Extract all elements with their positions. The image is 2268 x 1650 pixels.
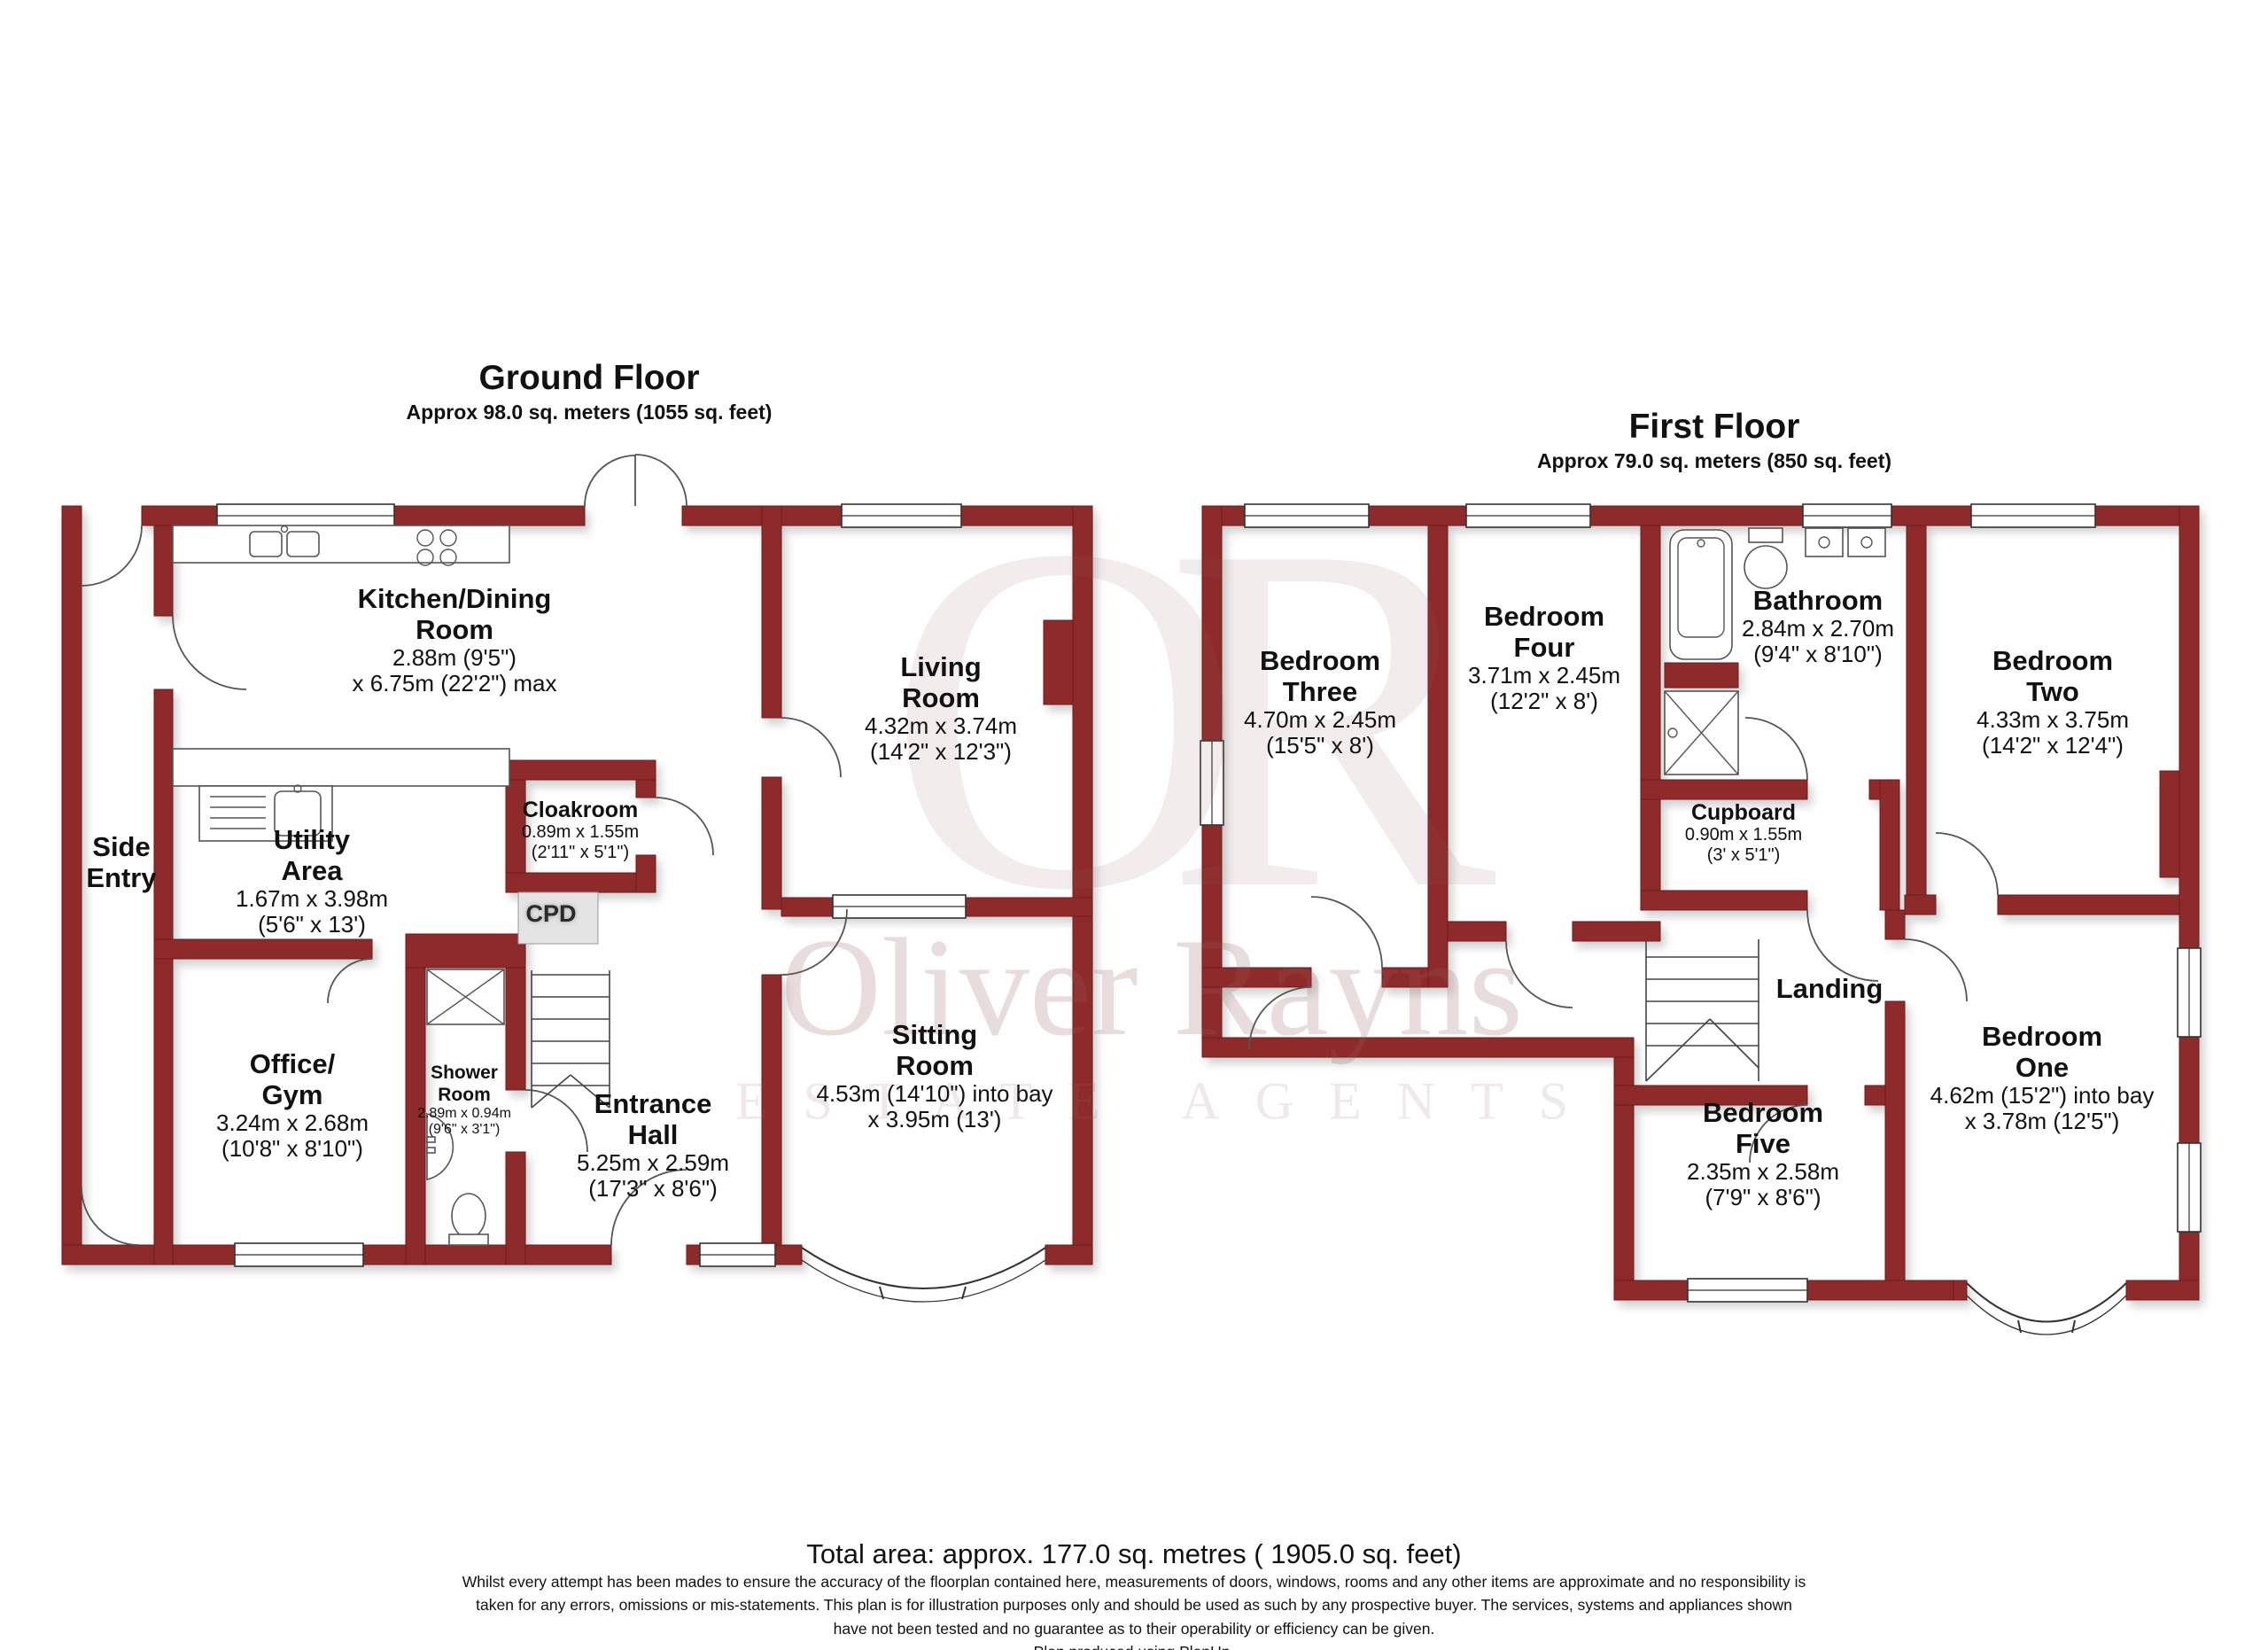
room-dims: 2.35m x 2.58m <box>1687 1159 1839 1185</box>
room-name: Bedroom <box>1244 645 1396 676</box>
room-name: Entry <box>86 862 156 893</box>
room-dims: x 6.75m (22'2") max <box>353 671 557 697</box>
room-label-entrance-hall: Entrance Hall 5.25m x 2.59m (17'3" x 8'6… <box>577 1088 729 1202</box>
room-label-living: Living Room 4.32m x 3.74m (14'2" x 12'3"… <box>865 651 1017 766</box>
room-name: Five <box>1687 1128 1839 1159</box>
room-dims: (14'2" x 12'4") <box>1977 733 2129 759</box>
room-name: One <box>1930 1052 2155 1083</box>
room-dims: (7'9" x 8'6") <box>1687 1185 1839 1210</box>
first-floor-title: First Floor <box>1629 408 1800 447</box>
disclaimer-line: have not been tested and no guarantee as… <box>462 1617 1806 1640</box>
room-name: Cupboard <box>1685 800 1802 825</box>
disclaimer-line: taken for any errors, omissions or mis-s… <box>462 1593 1806 1616</box>
room-name: Side <box>86 831 156 862</box>
room-label-side-entry: Side Entry <box>86 831 156 893</box>
disclaimer-line: Whilst every attempt has been mades to e… <box>462 1570 1806 1593</box>
first-floor-subtitle: Approx 79.0 sq. meters (850 sq. feet) <box>1537 449 1891 473</box>
room-name: Bedroom <box>1468 601 1620 632</box>
room-name: Kitchen/Dining <box>353 583 557 614</box>
room-label-bedroom-one: Bedroom One 4.62m (15'2") into bay x 3.7… <box>1930 1021 2155 1135</box>
room-dims: 4.32m x 3.74m <box>865 713 1017 739</box>
room-name: Bathroom <box>1742 585 1894 616</box>
room-label-bedroom-four: Bedroom Four 3.71m x 2.45m (12'2" x 8') <box>1468 601 1620 715</box>
room-label-shower-room: Shower Room 2.89m x 0.94m (9'6" x 3'1") <box>417 1062 511 1139</box>
room-dims: (9'4" x 8'10") <box>1742 642 1894 667</box>
room-dims: (5'6" x 13') <box>236 912 388 938</box>
room-label-sitting: Sitting Room 4.53m (14'10") into bay x 3… <box>816 1019 1052 1133</box>
room-dims: 3.24m x 2.68m <box>216 1110 369 1136</box>
room-dims: (12'2" x 8') <box>1468 689 1620 714</box>
room-name: Landing <box>1776 973 1884 1004</box>
room-dims: (14'2" x 12'3") <box>865 739 1017 765</box>
room-name: Two <box>1977 676 2129 707</box>
disclaimer-text: Whilst every attempt has been mades to e… <box>462 1570 1806 1650</box>
first-stairs <box>1646 939 1759 1081</box>
room-dims: (17'3" x 8'6") <box>577 1176 729 1202</box>
room-name: Hall <box>577 1119 729 1150</box>
room-name: Room <box>816 1050 1052 1081</box>
room-name: Entrance <box>577 1088 729 1119</box>
room-dims: 2.84m x 2.70m <box>1742 616 1894 642</box>
room-label-cupboard: Cupboard 0.90m x 1.55m (3' x 5'1") <box>1685 800 1802 865</box>
room-dims: (2'11" x 5'1") <box>522 843 639 863</box>
room-name: Bedroom <box>1977 645 2129 676</box>
room-name: Four <box>1468 632 1620 663</box>
room-label-bedroom-three: Bedroom Three 4.70m x 2.45m (15'5" x 8') <box>1244 645 1396 759</box>
room-dims: 4.62m (15'2") into bay <box>1930 1083 2155 1109</box>
ground-floor-subtitle: Approx 98.0 sq. meters (1055 sq. feet) <box>407 401 773 424</box>
ground-stairs <box>532 970 610 1108</box>
room-dims: 2.88m (9'5") <box>353 645 557 671</box>
room-label-kitchen-dining: Kitchen/Dining Room 2.88m (9'5") x 6.75m… <box>353 583 557 697</box>
ground-bay-window <box>802 1248 1045 1302</box>
room-dims: x 3.95m (13') <box>816 1107 1052 1132</box>
kitchen-counter-icon <box>173 525 509 565</box>
room-label-utility: Utility Area 1.67m x 3.98m (5'6" x 13') <box>236 824 388 938</box>
room-dims: 5.25m x 2.59m <box>577 1150 729 1176</box>
room-dims: (15'5" x 8') <box>1244 733 1396 759</box>
room-dims: 4.70m x 2.45m <box>1244 707 1396 733</box>
room-dims: 0.89m x 1.55m <box>522 822 639 843</box>
room-dims: x 3.78m (12'5") <box>1930 1109 2155 1134</box>
disclaimer-line: Plan produced using PlanUp. <box>462 1640 1806 1650</box>
room-name: Bedroom <box>1687 1097 1839 1128</box>
room-dims: (10'8" x 8'10") <box>216 1136 369 1162</box>
total-area-text: Total area: approx. 177.0 sq. metres ( 1… <box>806 1538 1461 1570</box>
room-label-bathroom: Bathroom 2.84m x 2.70m (9'4" x 8'10") <box>1742 585 1894 668</box>
floorplan-page: OR Oliver Rayns ESTATE AGENTS <box>0 0 2268 1650</box>
room-dims: 1.67m x 3.98m <box>236 886 388 912</box>
room-name: Room <box>417 1084 511 1106</box>
room-label-cpd: CPD <box>525 900 576 928</box>
room-name: Shower <box>417 1062 511 1084</box>
room-dims: (3' x 5'1") <box>1685 845 1802 866</box>
first-bay-window <box>1967 1283 2126 1335</box>
room-label-office-gym: Office/ Gym 3.24m x 2.68m (10'8" x 8'10"… <box>216 1048 369 1163</box>
room-name: Sitting <box>816 1019 1052 1050</box>
room-name: Three <box>1244 676 1396 707</box>
room-name: Room <box>865 682 1017 713</box>
room-dims: 4.53m (14'10") into bay <box>816 1081 1052 1107</box>
room-label-bedroom-two: Bedroom Two 4.33m x 3.75m (14'2" x 12'4"… <box>1977 645 2129 759</box>
room-label-landing: Landing <box>1776 973 1884 1004</box>
ground-floor-title: Ground Floor <box>478 359 699 398</box>
room-name: Room <box>353 614 557 645</box>
room-name: Living <box>865 651 1017 682</box>
room-name: Bedroom <box>1930 1021 2155 1052</box>
room-label-bedroom-five: Bedroom Five 2.35m x 2.58m (7'9" x 8'6") <box>1687 1097 1839 1211</box>
room-label-cloakroom: Cloakroom 0.89m x 1.55m (2'11" x 5'1") <box>522 798 639 862</box>
room-dims: 2.89m x 0.94m <box>417 1106 511 1122</box>
room-dims: 0.90m x 1.55m <box>1685 825 1802 845</box>
room-name: Office/ <box>216 1048 369 1079</box>
room-dims: (9'6" x 3'1") <box>417 1122 511 1138</box>
room-name: Utility <box>236 824 388 855</box>
room-dims: 4.33m x 3.75m <box>1977 707 2129 733</box>
room-name: Cloakroom <box>522 798 639 822</box>
room-name: Gym <box>216 1079 369 1110</box>
room-name: Area <box>236 855 388 886</box>
room-dims: 3.71m x 2.45m <box>1468 663 1620 689</box>
